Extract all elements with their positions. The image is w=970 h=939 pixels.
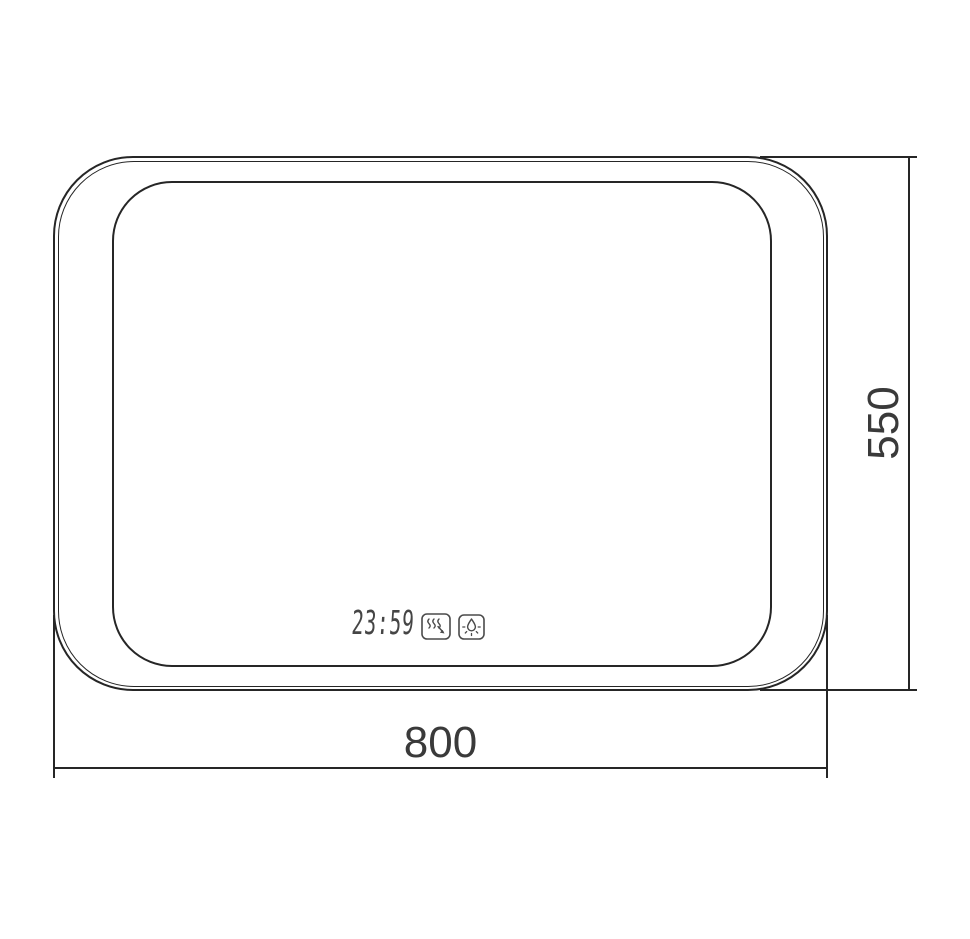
width-dimension-label: 800 xyxy=(53,721,828,765)
height-dimension-line xyxy=(908,156,910,691)
extension-line-right-bottom xyxy=(760,689,917,691)
light-drop-icon xyxy=(458,614,485,640)
extension-line-top-right xyxy=(760,156,917,158)
width-dimension-line xyxy=(53,767,828,769)
height-dimension-label: 550 xyxy=(862,386,906,459)
clock-display: 23:59 xyxy=(351,606,416,639)
led-strip-outline xyxy=(112,181,772,667)
mirror-outline xyxy=(53,156,828,691)
drawing-canvas: 23:59 800 550 xyxy=(0,0,970,939)
defog-icon xyxy=(421,613,451,640)
